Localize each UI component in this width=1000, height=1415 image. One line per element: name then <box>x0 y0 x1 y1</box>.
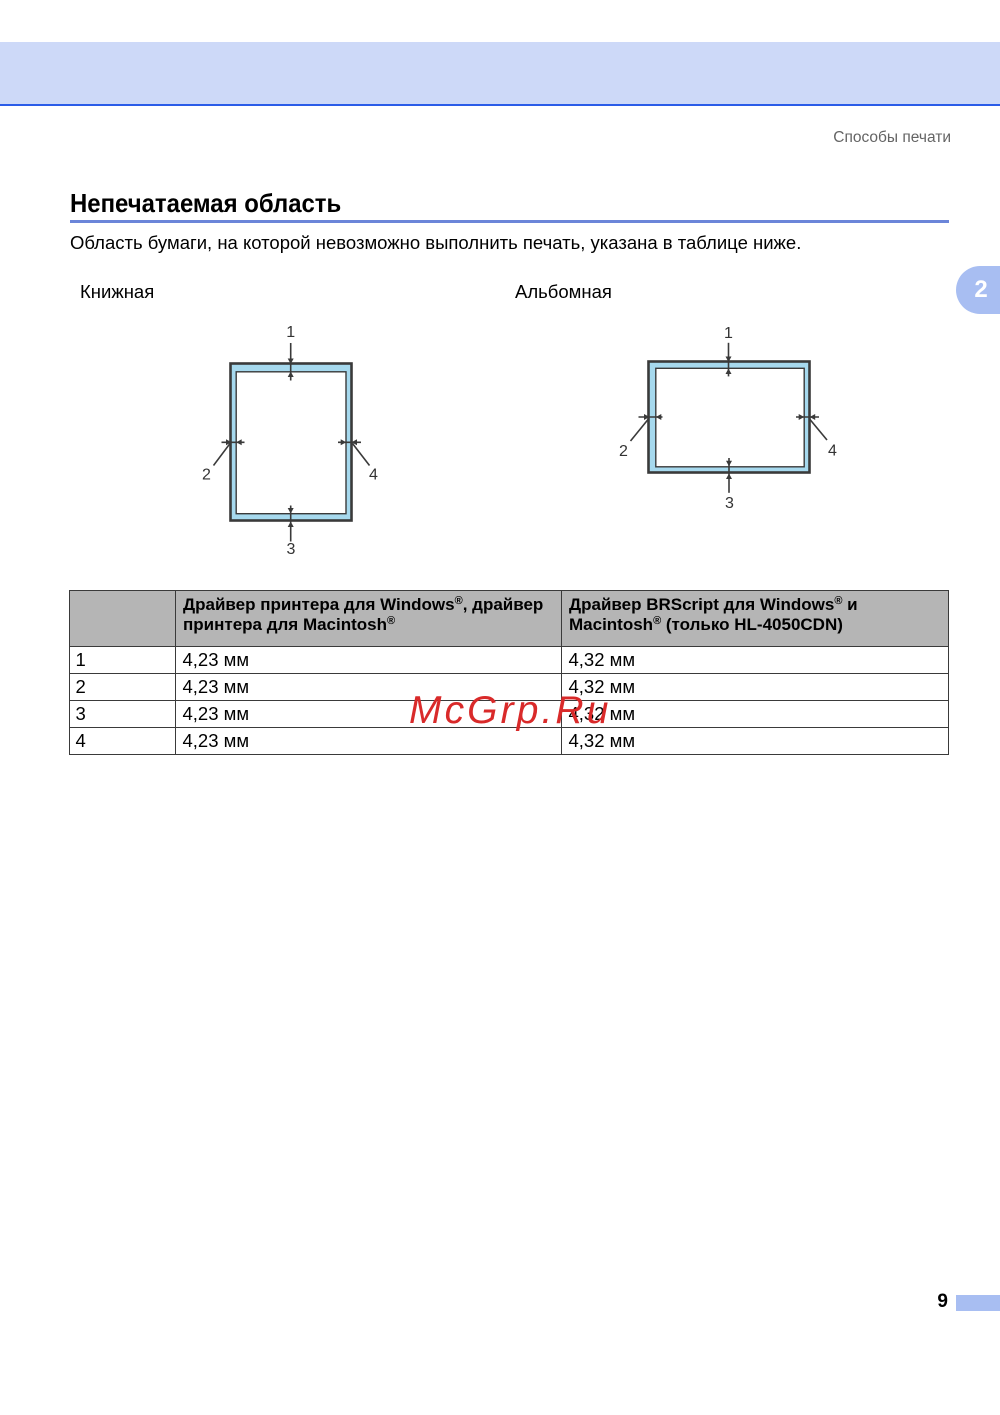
svg-text:1: 1 <box>724 325 733 342</box>
svg-text:2: 2 <box>202 467 211 484</box>
svg-text:4: 4 <box>369 467 378 484</box>
svg-text:3: 3 <box>287 541 296 558</box>
svg-text:2: 2 <box>619 443 628 460</box>
svg-text:1: 1 <box>286 324 295 341</box>
svg-text:3: 3 <box>725 495 734 512</box>
svg-text:4: 4 <box>828 443 837 460</box>
